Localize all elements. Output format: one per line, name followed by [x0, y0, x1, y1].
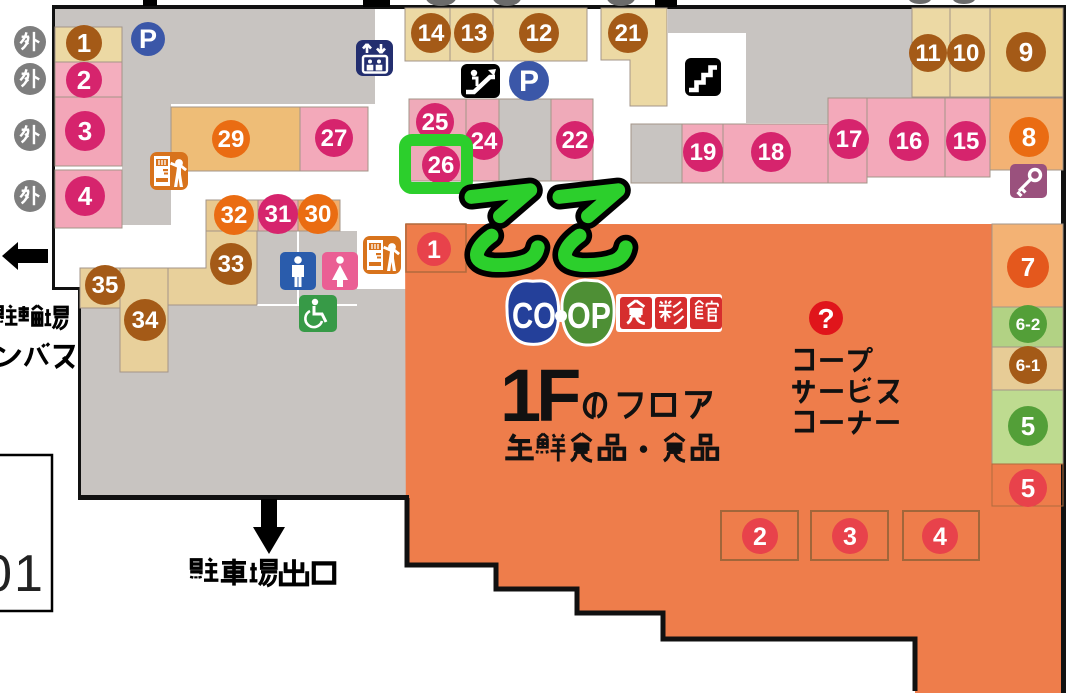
- svg-text:9: 9: [1019, 37, 1033, 67]
- svg-text:27: 27: [321, 125, 348, 152]
- svg-text:30: 30: [305, 201, 332, 228]
- svg-text:3: 3: [843, 523, 857, 551]
- svg-text:3: 3: [78, 116, 92, 146]
- svg-text:6-2: 6-2: [1016, 315, 1041, 334]
- svg-text:5: 5: [1021, 473, 1035, 503]
- svg-text:35: 35: [92, 272, 119, 299]
- svg-text:1: 1: [77, 28, 91, 58]
- svg-text:P: P: [519, 65, 539, 98]
- svg-text:8: 8: [1022, 122, 1036, 152]
- svg-text:21: 21: [615, 20, 642, 47]
- svg-text:11: 11: [915, 40, 940, 67]
- svg-text:5: 5: [1021, 411, 1035, 441]
- svg-text:P: P: [139, 24, 157, 54]
- svg-text:?: ?: [817, 303, 834, 334]
- svg-text:1: 1: [427, 236, 441, 264]
- svg-text:33: 33: [218, 251, 245, 278]
- svg-text:2: 2: [753, 523, 767, 551]
- svg-text:25: 25: [422, 109, 449, 136]
- svg-text:32: 32: [221, 202, 248, 229]
- svg-text:2: 2: [77, 65, 91, 95]
- svg-text:31: 31: [265, 201, 292, 228]
- svg-text:6-1: 6-1: [1016, 356, 1041, 375]
- svg-text:22: 22: [562, 127, 589, 154]
- svg-text:19: 19: [690, 139, 717, 166]
- svg-text:4: 4: [78, 181, 93, 211]
- svg-text:29: 29: [218, 126, 245, 153]
- svg-text:26: 26: [428, 152, 455, 179]
- svg-text:01: 01: [0, 545, 45, 603]
- svg-text:15: 15: [953, 128, 980, 155]
- svg-text:24: 24: [471, 128, 498, 155]
- svg-text:12: 12: [526, 20, 553, 47]
- svg-text:17: 17: [836, 126, 863, 153]
- svg-text:CO: CO: [512, 295, 556, 336]
- svg-text:1F: 1F: [500, 354, 579, 437]
- svg-text:OP: OP: [567, 295, 611, 336]
- svg-text:14: 14: [418, 20, 445, 47]
- svg-text:4: 4: [933, 523, 947, 551]
- svg-text:18: 18: [758, 139, 785, 166]
- svg-text:16: 16: [896, 128, 923, 155]
- svg-text:34: 34: [132, 307, 159, 334]
- svg-text:7: 7: [1021, 252, 1035, 282]
- svg-text:10: 10: [953, 40, 980, 67]
- svg-text:13: 13: [461, 20, 488, 47]
